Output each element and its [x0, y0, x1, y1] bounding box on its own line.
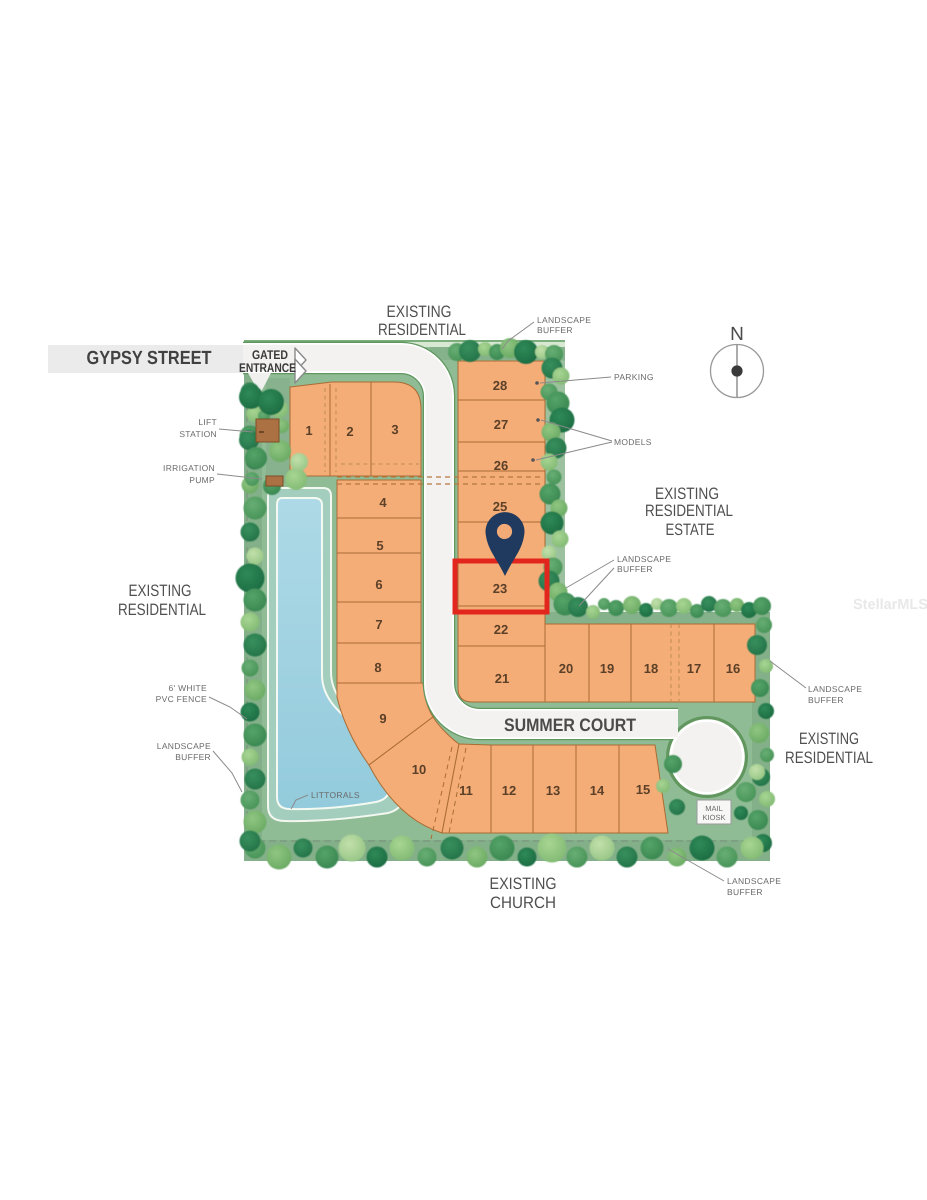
svg-text:KIOSK: KIOSK [703, 813, 726, 822]
svg-text:STATION: STATION [179, 429, 217, 439]
svg-text:6' WHITE: 6' WHITE [169, 683, 208, 693]
svg-text:LANDSCAPE: LANDSCAPE [727, 876, 781, 886]
svg-text:MAIL: MAIL [705, 804, 723, 813]
svg-text:ESTATE: ESTATE [666, 521, 715, 539]
svg-text:19: 19 [600, 661, 614, 676]
svg-text:BUFFER: BUFFER [537, 325, 573, 335]
svg-text:1: 1 [305, 423, 312, 438]
svg-text:15: 15 [636, 782, 650, 797]
svg-text:22: 22 [494, 622, 508, 637]
svg-text:PARKING: PARKING [614, 372, 654, 382]
svg-text:6: 6 [375, 577, 382, 592]
svg-text:BUFFER: BUFFER [617, 564, 653, 574]
svg-text:LANDSCAPE: LANDSCAPE [537, 315, 591, 325]
svg-text:RESIDENTIAL: RESIDENTIAL [118, 601, 206, 619]
svg-text:PUMP: PUMP [189, 475, 215, 485]
svg-text:MODELS: MODELS [614, 437, 652, 447]
svg-text:LANDSCAPE: LANDSCAPE [157, 741, 211, 751]
svg-text:4: 4 [379, 495, 387, 510]
svg-text:N: N [730, 324, 744, 345]
svg-text:18: 18 [644, 661, 658, 676]
svg-text:CHURCH: CHURCH [490, 894, 556, 912]
svg-text:17: 17 [687, 661, 701, 676]
svg-text:7: 7 [375, 617, 382, 632]
svg-text:EXISTING: EXISTING [129, 582, 192, 600]
svg-text:LANDSCAPE: LANDSCAPE [617, 554, 671, 564]
svg-text:RESIDENTIAL: RESIDENTIAL [378, 321, 466, 339]
svg-text:PVC FENCE: PVC FENCE [156, 694, 207, 704]
svg-text:SUMMER COURT: SUMMER COURT [504, 715, 636, 735]
svg-text:EXISTING: EXISTING [799, 730, 859, 748]
svg-text:IRRIGATION: IRRIGATION [163, 463, 215, 473]
svg-text:25: 25 [493, 499, 507, 514]
svg-text:2: 2 [346, 424, 353, 439]
svg-text:13: 13 [546, 783, 560, 798]
svg-text:LIFT: LIFT [198, 417, 217, 427]
svg-text:ENTRANCE: ENTRANCE [239, 361, 296, 375]
svg-text:StellarMLS: StellarMLS [853, 597, 927, 613]
svg-text:12: 12 [502, 783, 516, 798]
svg-text:9: 9 [379, 711, 386, 726]
svg-text:EXISTING: EXISTING [387, 303, 452, 321]
svg-text:GATED: GATED [252, 348, 288, 362]
svg-text:8: 8 [374, 660, 381, 675]
svg-text:RESIDENTIAL: RESIDENTIAL [645, 502, 733, 520]
svg-text:28: 28 [493, 378, 507, 393]
svg-text:LITTORALS: LITTORALS [311, 790, 360, 800]
svg-text:5: 5 [376, 538, 383, 553]
svg-text:11: 11 [459, 783, 473, 798]
svg-text:16: 16 [726, 661, 740, 676]
svg-text:RESIDENTIAL: RESIDENTIAL [785, 749, 873, 767]
svg-text:EXISTING: EXISTING [490, 875, 557, 893]
svg-text:23: 23 [493, 581, 507, 596]
svg-text:BUFFER: BUFFER [808, 695, 844, 705]
svg-text:LANDSCAPE: LANDSCAPE [808, 684, 862, 694]
svg-text:14: 14 [590, 783, 605, 798]
svg-text:27: 27 [494, 417, 508, 432]
svg-text:BUFFER: BUFFER [175, 752, 211, 762]
svg-text:20: 20 [559, 661, 573, 676]
svg-text:26: 26 [494, 458, 508, 473]
svg-text:EXISTING: EXISTING [655, 485, 719, 503]
svg-text:GYPSY STREET: GYPSY STREET [87, 348, 212, 369]
svg-text:21: 21 [495, 671, 509, 686]
svg-text:10: 10 [412, 762, 426, 777]
svg-text:BUFFER: BUFFER [727, 887, 763, 897]
svg-text:3: 3 [391, 422, 398, 437]
